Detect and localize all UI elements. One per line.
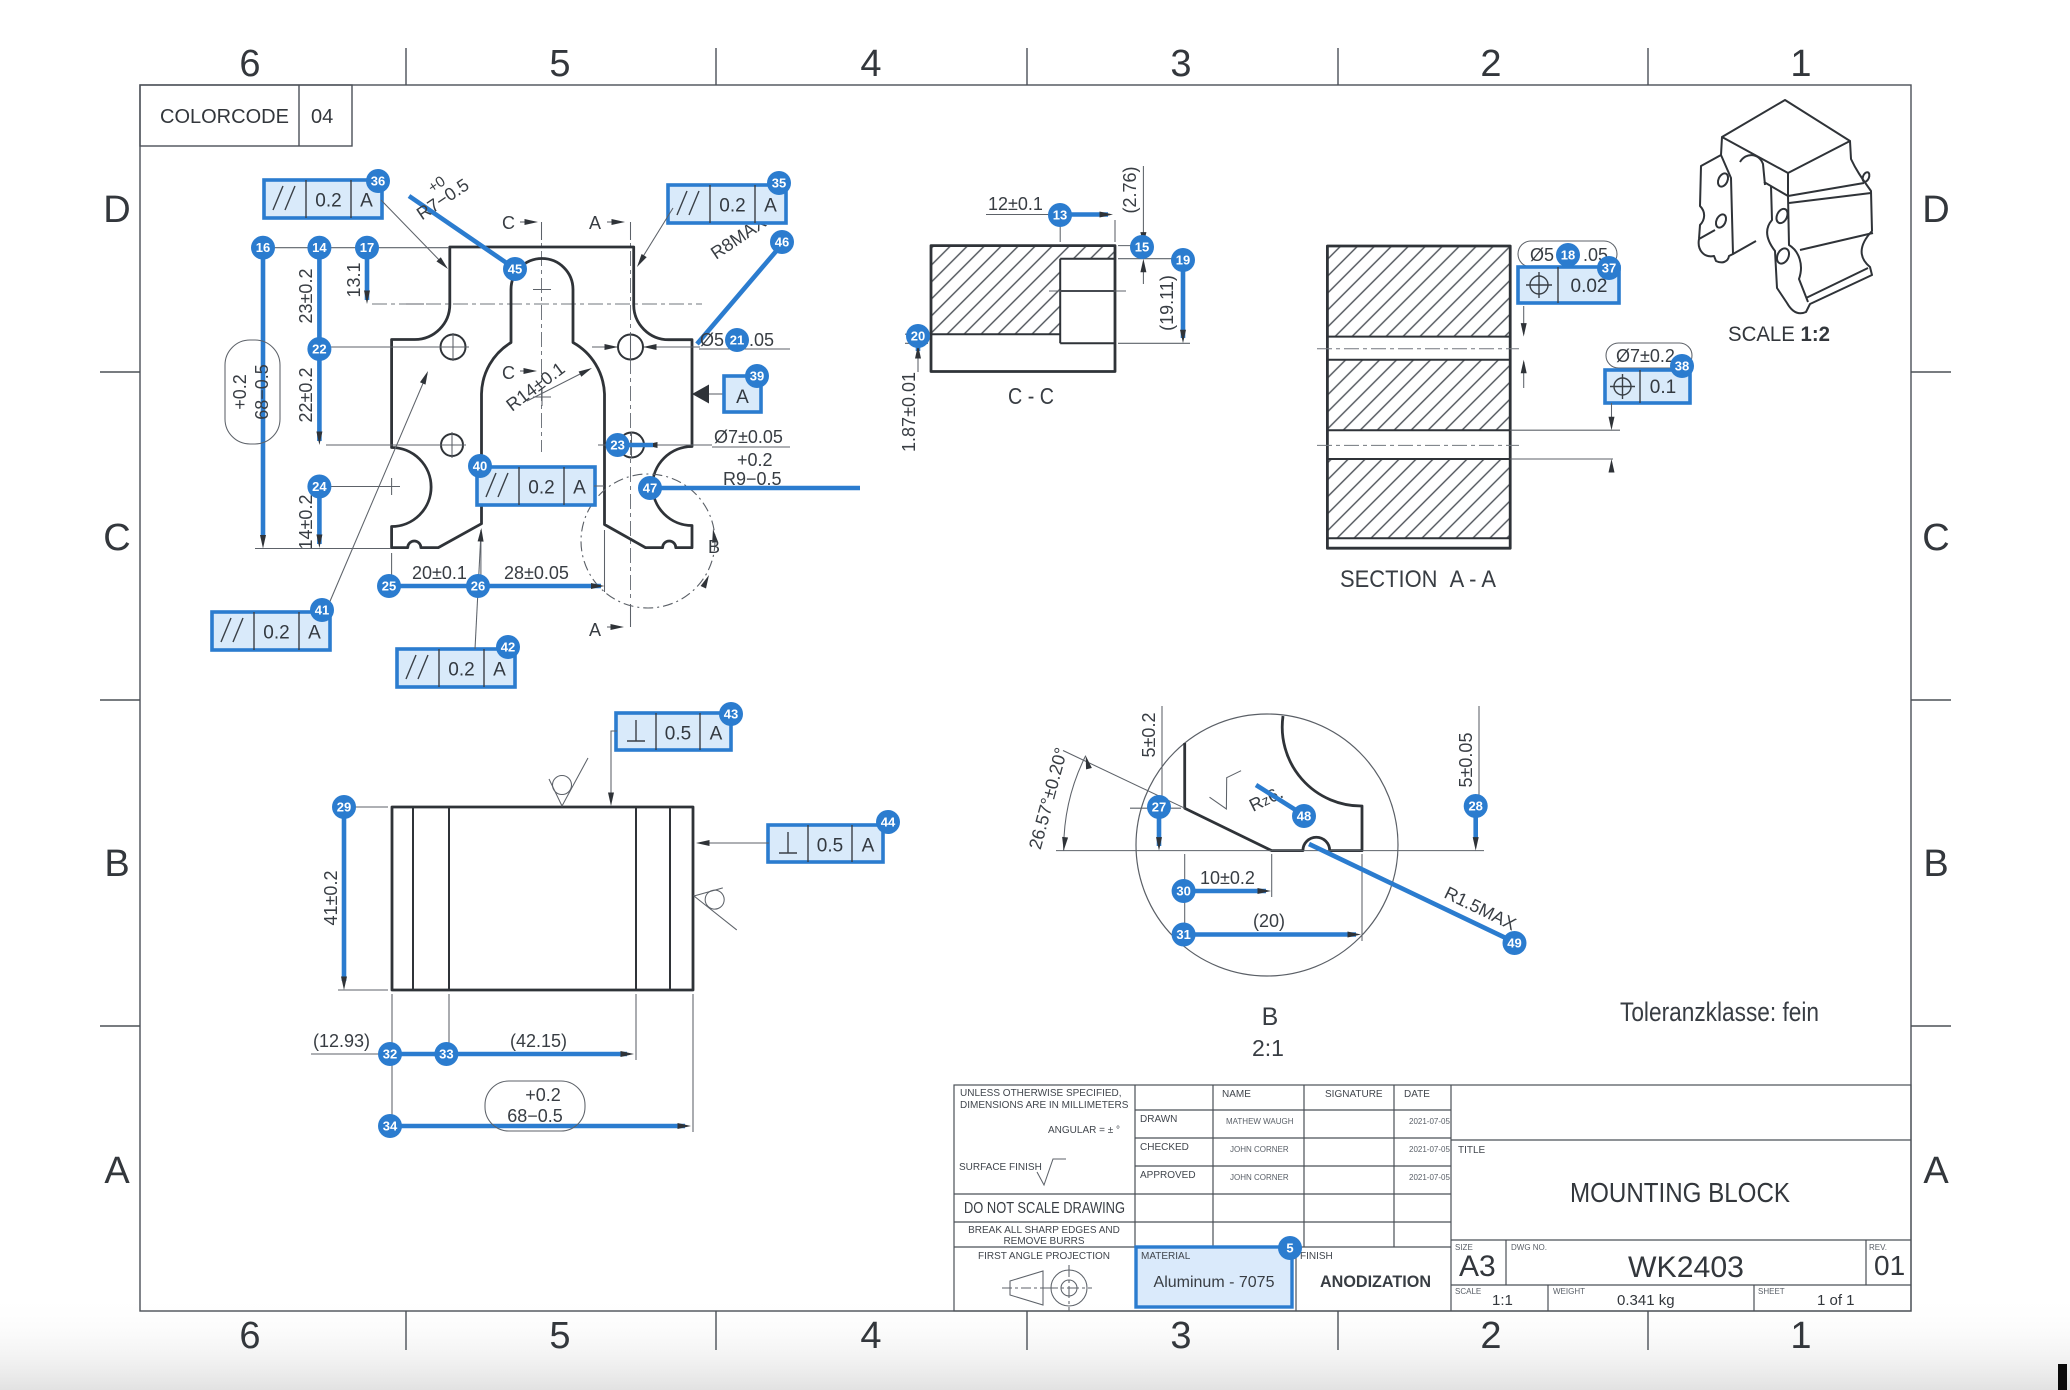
svg-text:17: 17 [360, 240, 374, 255]
svg-text:28: 28 [1468, 799, 1482, 814]
svg-text:(19.11): (19.11) [1157, 275, 1177, 331]
svg-text:+0.2: +0.2 [525, 1085, 561, 1105]
svg-text:0.2: 0.2 [315, 191, 341, 212]
svg-text:0.5: 0.5 [665, 724, 691, 745]
svg-text:16: 16 [256, 240, 270, 255]
svg-text:A: A [1923, 1150, 1949, 1192]
svg-text:A: A [589, 620, 601, 640]
svg-text:15: 15 [1135, 240, 1149, 255]
svg-text:25: 25 [382, 579, 396, 594]
svg-text:Ø5: Ø5 [700, 330, 724, 350]
svg-text:37: 37 [1602, 261, 1616, 276]
svg-text:C - C: C - C [1008, 383, 1054, 409]
svg-text:28±0.05: 28±0.05 [504, 563, 569, 583]
svg-text:04: 04 [311, 106, 333, 128]
svg-text:45: 45 [508, 262, 522, 277]
svg-text:A: A [736, 387, 749, 408]
svg-text:MATHEW WAUGH: MATHEW WAUGH [1226, 1117, 1294, 1126]
svg-text:41: 41 [315, 603, 329, 618]
svg-text:1.87±0.01: 1.87±0.01 [899, 372, 919, 452]
svg-text:30: 30 [1176, 884, 1190, 899]
svg-text:3: 3 [1170, 1315, 1191, 1357]
svg-text:.05: .05 [749, 330, 774, 350]
svg-text:68−0.5: 68−0.5 [507, 1106, 563, 1126]
svg-text:44: 44 [881, 815, 896, 830]
svg-text:1: 1 [1790, 1315, 1811, 1357]
svg-text:B: B [1923, 843, 1948, 885]
svg-text:Ø5: Ø5 [1530, 245, 1554, 265]
svg-text:JOHN CORNER: JOHN CORNER [1230, 1145, 1289, 1154]
svg-text:23: 23 [610, 438, 624, 453]
svg-text:5: 5 [549, 43, 570, 85]
svg-text:ANGULAR = ± °: ANGULAR = ± ° [1048, 1125, 1120, 1136]
svg-text:SIGNATURE: SIGNATURE [1325, 1089, 1383, 1100]
svg-text:SURFACE FINISH: SURFACE FINISH [959, 1162, 1042, 1173]
svg-text:C: C [502, 363, 515, 383]
svg-text:14: 14 [312, 240, 327, 255]
svg-text:6: 6 [239, 43, 260, 85]
svg-text:A: A [493, 660, 506, 681]
svg-text:20: 20 [911, 329, 925, 344]
svg-text:6: 6 [239, 1315, 260, 1357]
svg-text:C: C [1922, 517, 1949, 559]
svg-text:+0.2: +0.2 [230, 374, 250, 410]
svg-text:D: D [1922, 189, 1949, 231]
svg-text:4: 4 [860, 43, 881, 85]
svg-text:A: A [710, 724, 723, 745]
svg-text:1: 1 [1790, 43, 1811, 85]
svg-text:13.1: 13.1 [344, 262, 364, 297]
svg-text:5: 5 [1286, 1241, 1293, 1256]
svg-text:24: 24 [312, 479, 327, 494]
svg-text:(12.93): (12.93) [313, 1031, 370, 1051]
svg-text:0.1: 0.1 [1650, 377, 1676, 398]
svg-text:A: A [862, 836, 875, 857]
svg-text:B: B [708, 537, 720, 557]
svg-text:19: 19 [1176, 253, 1190, 268]
svg-text:22: 22 [312, 342, 326, 357]
svg-text:FIRST ANGLE PROJECTION: FIRST ANGLE PROJECTION [978, 1251, 1110, 1262]
svg-text:(2.76): (2.76) [1120, 166, 1140, 213]
svg-text:1:1: 1:1 [1492, 1292, 1513, 1309]
svg-text:23±0.2: 23±0.2 [296, 269, 316, 324]
svg-text:APPROVED: APPROVED [1140, 1170, 1196, 1181]
svg-text:Toleranzklasse: fein: Toleranzklasse: fein [1620, 997, 1819, 1027]
svg-text:47: 47 [643, 481, 657, 496]
svg-text:COLORCODE: COLORCODE [160, 106, 289, 128]
svg-text:2: 2 [1480, 43, 1501, 85]
svg-text:DRAWN: DRAWN [1140, 1114, 1177, 1125]
svg-text:5±0.05: 5±0.05 [1456, 733, 1476, 788]
svg-text:SCALE: SCALE [1455, 1287, 1481, 1296]
svg-text:NAME: NAME [1222, 1089, 1251, 1100]
svg-text:A: A [764, 196, 777, 217]
svg-text:0.02: 0.02 [1571, 276, 1608, 297]
svg-text:Aluminum - 7075: Aluminum - 7075 [1154, 1274, 1275, 1291]
svg-text:0.5: 0.5 [817, 836, 843, 857]
svg-text:SCALE 1:2: SCALE 1:2 [1728, 323, 1830, 346]
svg-text:18: 18 [1561, 248, 1575, 263]
svg-text:31: 31 [1176, 927, 1190, 942]
svg-text:2021-07-05: 2021-07-05 [1409, 1117, 1450, 1126]
svg-text:5: 5 [549, 1315, 570, 1357]
svg-text:A: A [360, 191, 373, 212]
svg-text:A: A [308, 623, 321, 644]
svg-text:C: C [103, 517, 130, 559]
svg-text:29: 29 [337, 800, 351, 815]
svg-text:22±0.2: 22±0.2 [296, 368, 316, 423]
svg-text:(42.15): (42.15) [510, 1031, 567, 1051]
svg-text:DWG NO.: DWG NO. [1511, 1243, 1547, 1252]
svg-text:10±0.2: 10±0.2 [1200, 868, 1255, 888]
svg-text:42: 42 [501, 640, 515, 655]
svg-text:48: 48 [1297, 809, 1311, 824]
svg-text:A: A [573, 478, 586, 499]
svg-text:1 of 1: 1 of 1 [1817, 1292, 1855, 1309]
svg-text:38: 38 [1675, 359, 1689, 374]
svg-text:49: 49 [1507, 936, 1521, 951]
svg-text:A: A [589, 213, 601, 233]
svg-text:68−0.5: 68−0.5 [252, 364, 272, 420]
svg-text:33: 33 [439, 1047, 453, 1062]
svg-text:35: 35 [772, 176, 786, 191]
svg-text:Ø7±0.05: Ø7±0.05 [714, 427, 783, 447]
svg-text:Ø7±0.2: Ø7±0.2 [1616, 346, 1675, 366]
svg-text:CHECKED: CHECKED [1140, 1142, 1189, 1153]
svg-text:B: B [1262, 1003, 1279, 1031]
svg-text:0.2: 0.2 [719, 196, 745, 217]
svg-text:21: 21 [730, 333, 744, 348]
svg-text:36: 36 [371, 174, 385, 189]
svg-text:JOHN CORNER: JOHN CORNER [1230, 1173, 1289, 1182]
svg-text:2:1: 2:1 [1252, 1035, 1284, 1061]
svg-text:01: 01 [1874, 1250, 1905, 1281]
svg-text:REMOVE BURRS: REMOVE BURRS [1003, 1236, 1084, 1247]
svg-text:3: 3 [1170, 43, 1191, 85]
svg-text:2021-07-05: 2021-07-05 [1409, 1145, 1450, 1154]
svg-text:5±0.2: 5±0.2 [1139, 713, 1159, 758]
svg-text:40: 40 [473, 459, 487, 474]
svg-text:14±0.2: 14±0.2 [296, 495, 316, 550]
svg-text:FINISH: FINISH [1300, 1251, 1333, 1262]
svg-text:+0.2: +0.2 [737, 450, 773, 470]
svg-text:DIMENSIONS ARE IN MILLIMETERS: DIMENSIONS ARE IN MILLIMETERS [960, 1100, 1129, 1111]
svg-text:0.2: 0.2 [263, 623, 289, 644]
svg-text:ANODIZATION: ANODIZATION [1320, 1272, 1431, 1291]
svg-text:A: A [104, 1150, 130, 1192]
svg-text:32: 32 [383, 1047, 397, 1062]
svg-text:DO NOT SCALE DRAWING: DO NOT SCALE DRAWING [964, 1200, 1125, 1217]
svg-text:2021-07-05: 2021-07-05 [1409, 1173, 1450, 1182]
svg-text:34: 34 [383, 1119, 398, 1134]
svg-text:C: C [502, 213, 515, 233]
svg-text:DATE: DATE [1404, 1089, 1430, 1100]
svg-text:A3: A3 [1459, 1250, 1496, 1283]
svg-text:MATERIAL: MATERIAL [1141, 1251, 1191, 1262]
svg-text:27: 27 [1152, 800, 1166, 815]
svg-text:46: 46 [775, 235, 789, 250]
svg-text:26: 26 [471, 579, 485, 594]
svg-text:0.2: 0.2 [448, 660, 474, 681]
svg-text:20±0.1: 20±0.1 [412, 563, 467, 583]
svg-text:41±0.2: 41±0.2 [321, 871, 341, 926]
svg-text:12±0.1: 12±0.1 [988, 194, 1043, 214]
svg-text:4: 4 [860, 1315, 881, 1357]
svg-text:2: 2 [1480, 1315, 1501, 1357]
svg-text:SECTION A - A: SECTION A - A [1340, 566, 1496, 593]
svg-text:WEIGHT: WEIGHT [1553, 1287, 1585, 1296]
svg-text:B: B [104, 843, 129, 885]
svg-text:13: 13 [1053, 208, 1067, 223]
svg-text:(20): (20) [1253, 911, 1285, 931]
svg-text:BREAK ALL SHARP EDGES AND: BREAK ALL SHARP EDGES AND [968, 1225, 1120, 1236]
svg-text:MOUNTING BLOCK: MOUNTING BLOCK [1570, 1177, 1790, 1208]
svg-text:39: 39 [750, 369, 764, 384]
svg-text:WK2403: WK2403 [1628, 1251, 1744, 1284]
svg-text:D: D [103, 189, 130, 231]
svg-text:43: 43 [724, 707, 738, 722]
svg-text:UNLESS OTHERWISE SPECIFIED,: UNLESS OTHERWISE SPECIFIED, [960, 1088, 1122, 1099]
svg-text:TITLE: TITLE [1458, 1145, 1486, 1156]
svg-text:0.341 kg: 0.341 kg [1617, 1292, 1675, 1309]
svg-text:0.2: 0.2 [528, 478, 554, 499]
svg-text:SHEET: SHEET [1758, 1287, 1785, 1296]
